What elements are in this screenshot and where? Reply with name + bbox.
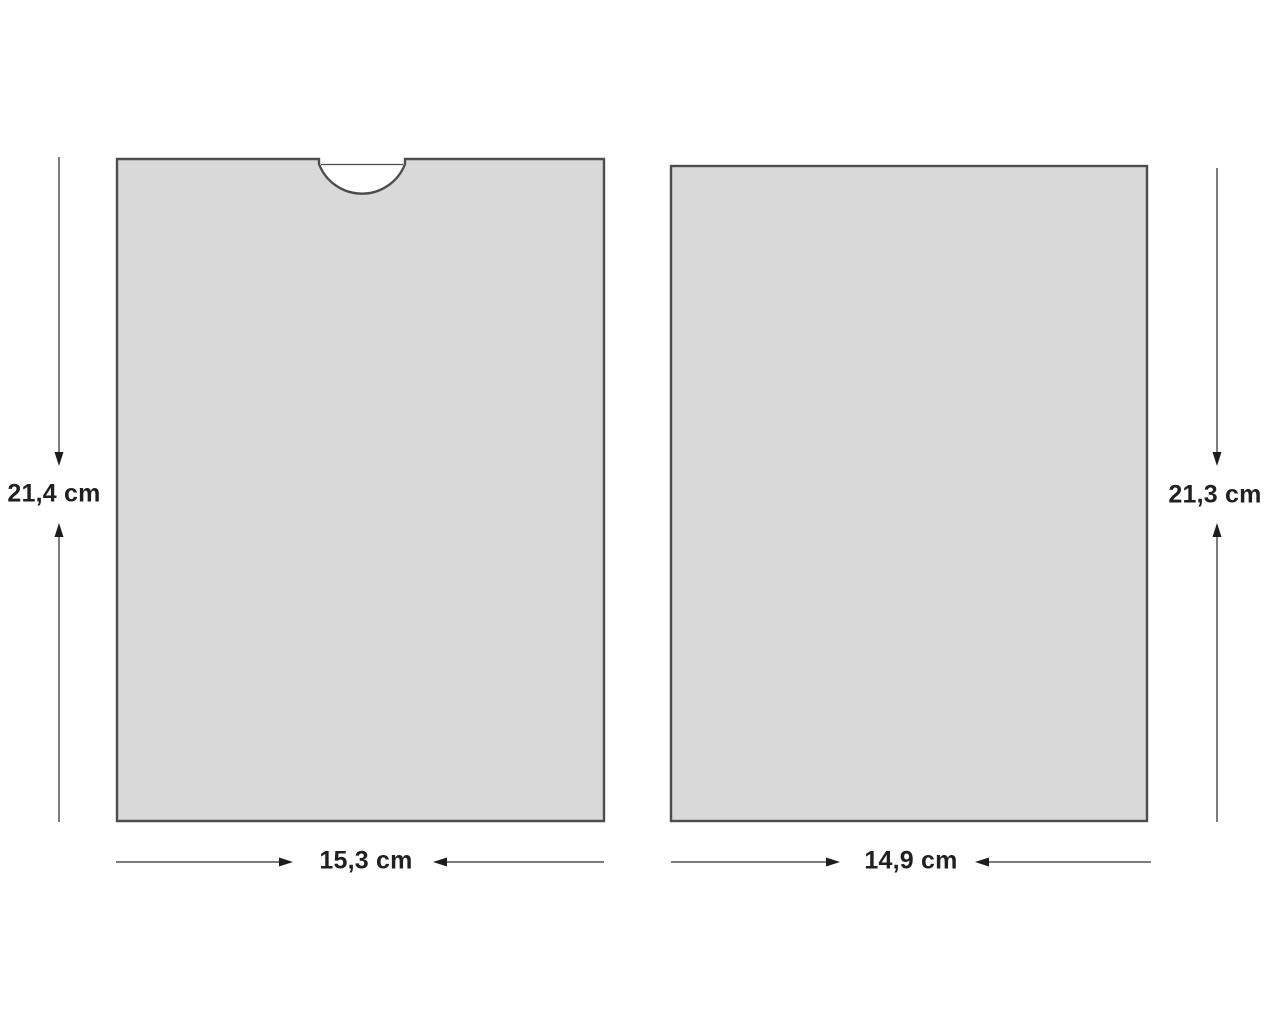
arrow-up-icon	[1213, 523, 1222, 537]
dimension-diagram	[0, 0, 1279, 1031]
card-width-label: 14,9 cm	[864, 849, 957, 874]
sleeve-height-label: 21,4 cm	[7, 482, 100, 507]
diagram-canvas: 21,4 cm 21,3 cm 15,3 cm 14,9 cm	[0, 0, 1279, 1031]
card-height-label: 21,3 cm	[1168, 483, 1261, 508]
card-panel-shape	[671, 166, 1147, 821]
sleeve-panel-shape	[117, 159, 604, 821]
arrow-right-icon	[826, 858, 840, 867]
arrow-left-icon	[975, 858, 989, 867]
sleeve-width-label: 15,3 cm	[319, 849, 412, 874]
arrow-left-icon	[433, 858, 447, 867]
arrow-up-icon	[55, 523, 64, 537]
arrow-down-icon	[1213, 452, 1222, 466]
arrow-down-icon	[55, 452, 64, 466]
arrow-right-icon	[279, 858, 293, 867]
